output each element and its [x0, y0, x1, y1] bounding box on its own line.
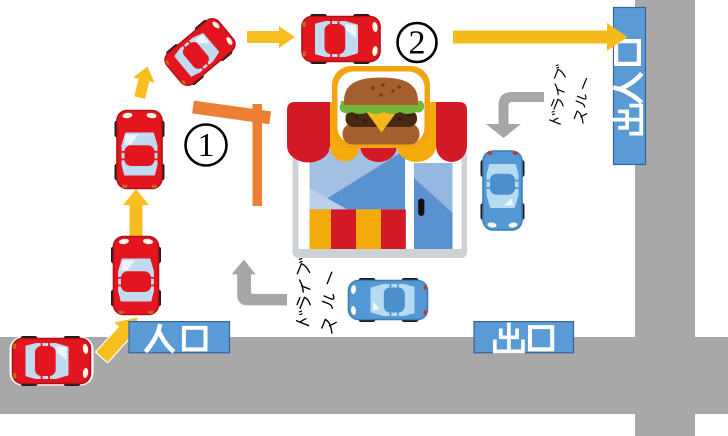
svg-text:2: 2 [409, 25, 426, 62]
svg-text:1: 1 [198, 127, 215, 164]
